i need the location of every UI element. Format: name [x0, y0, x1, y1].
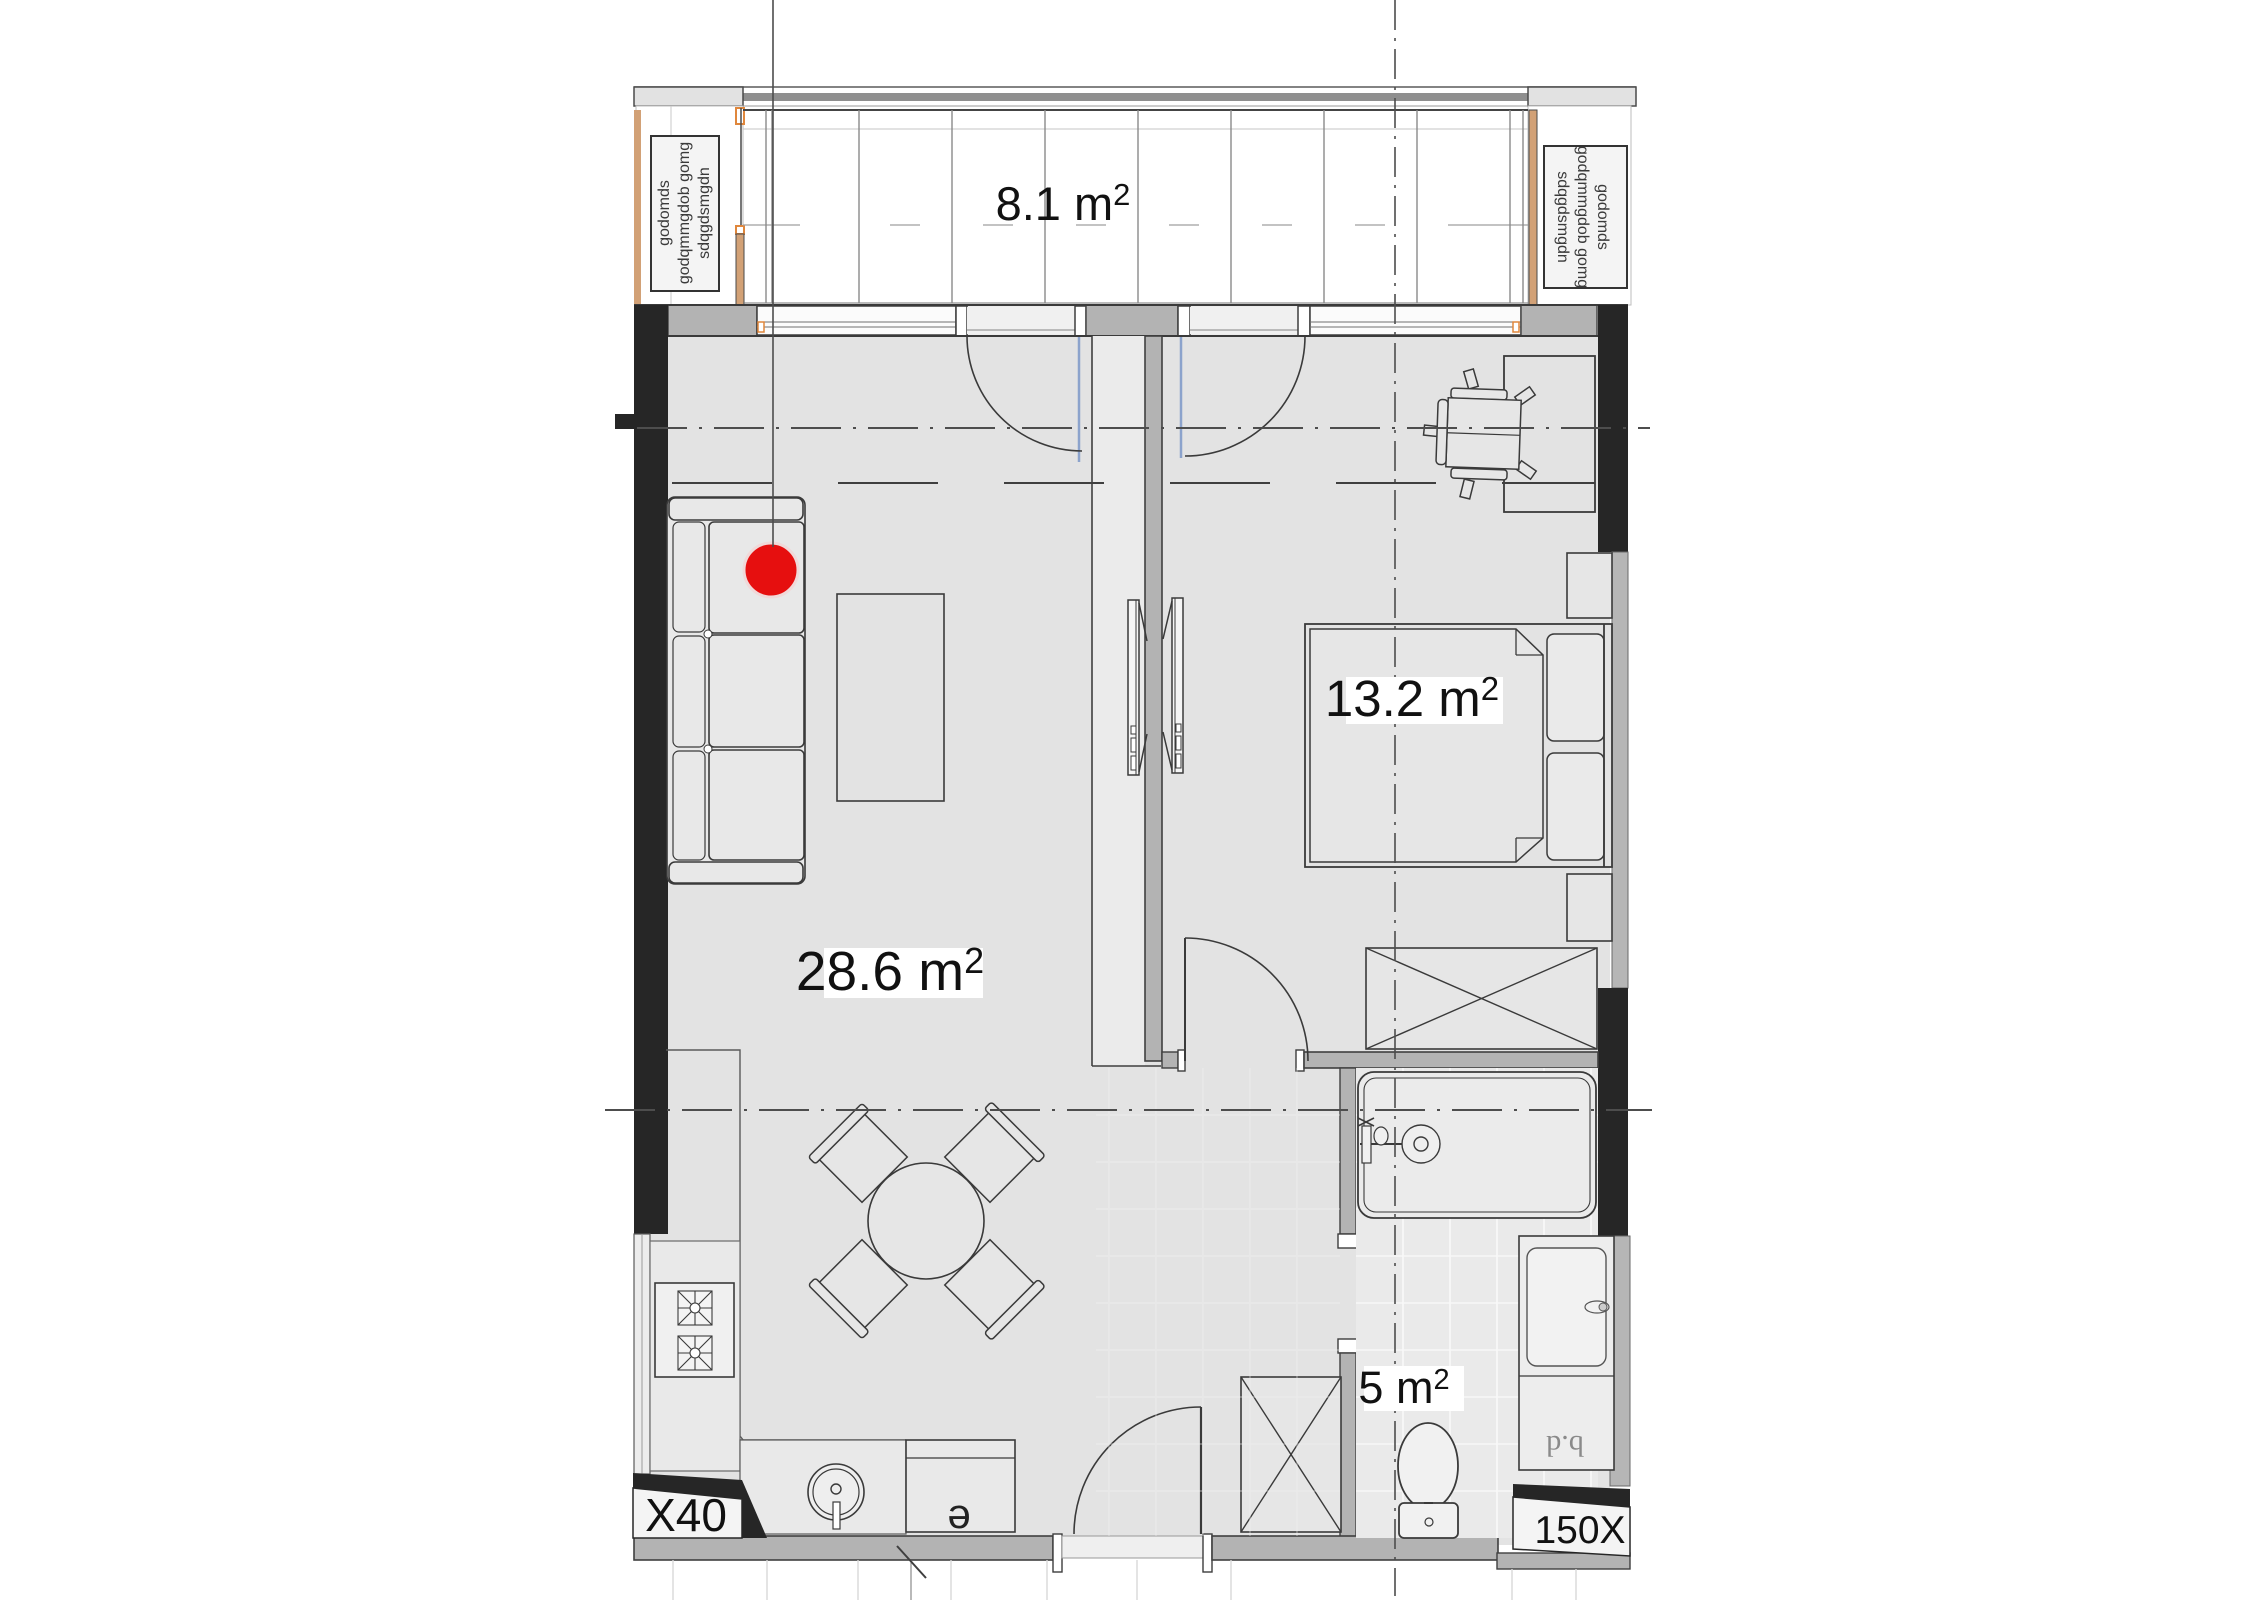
svg-text:godqmmgdob gomg: godqmmgdob gomg	[676, 142, 693, 284]
svg-text:8.1 m2: 8.1 m2	[996, 177, 1131, 230]
svg-text:sdqgdsmgdn: sdqgdsmgdn	[1554, 171, 1571, 263]
svg-text:e: e	[947, 1497, 970, 1544]
svg-text:28.6 m2: 28.6 m2	[796, 940, 984, 1002]
svg-text:b.d: b.d	[1546, 1429, 1584, 1462]
svg-text:sdqgdsmgdn: sdqgdsmgdn	[696, 167, 713, 259]
svg-text:X40: X40	[645, 1489, 727, 1541]
svg-text:150X: 150X	[1534, 1509, 1625, 1552]
svg-text:godomds: godomds	[1594, 184, 1611, 250]
svg-text:godqmmgdob gomg: godqmmgdob gomg	[1574, 146, 1591, 288]
svg-text:13.2 m2: 13.2 m2	[1325, 670, 1499, 727]
svg-text:godomds: godomds	[656, 180, 673, 246]
